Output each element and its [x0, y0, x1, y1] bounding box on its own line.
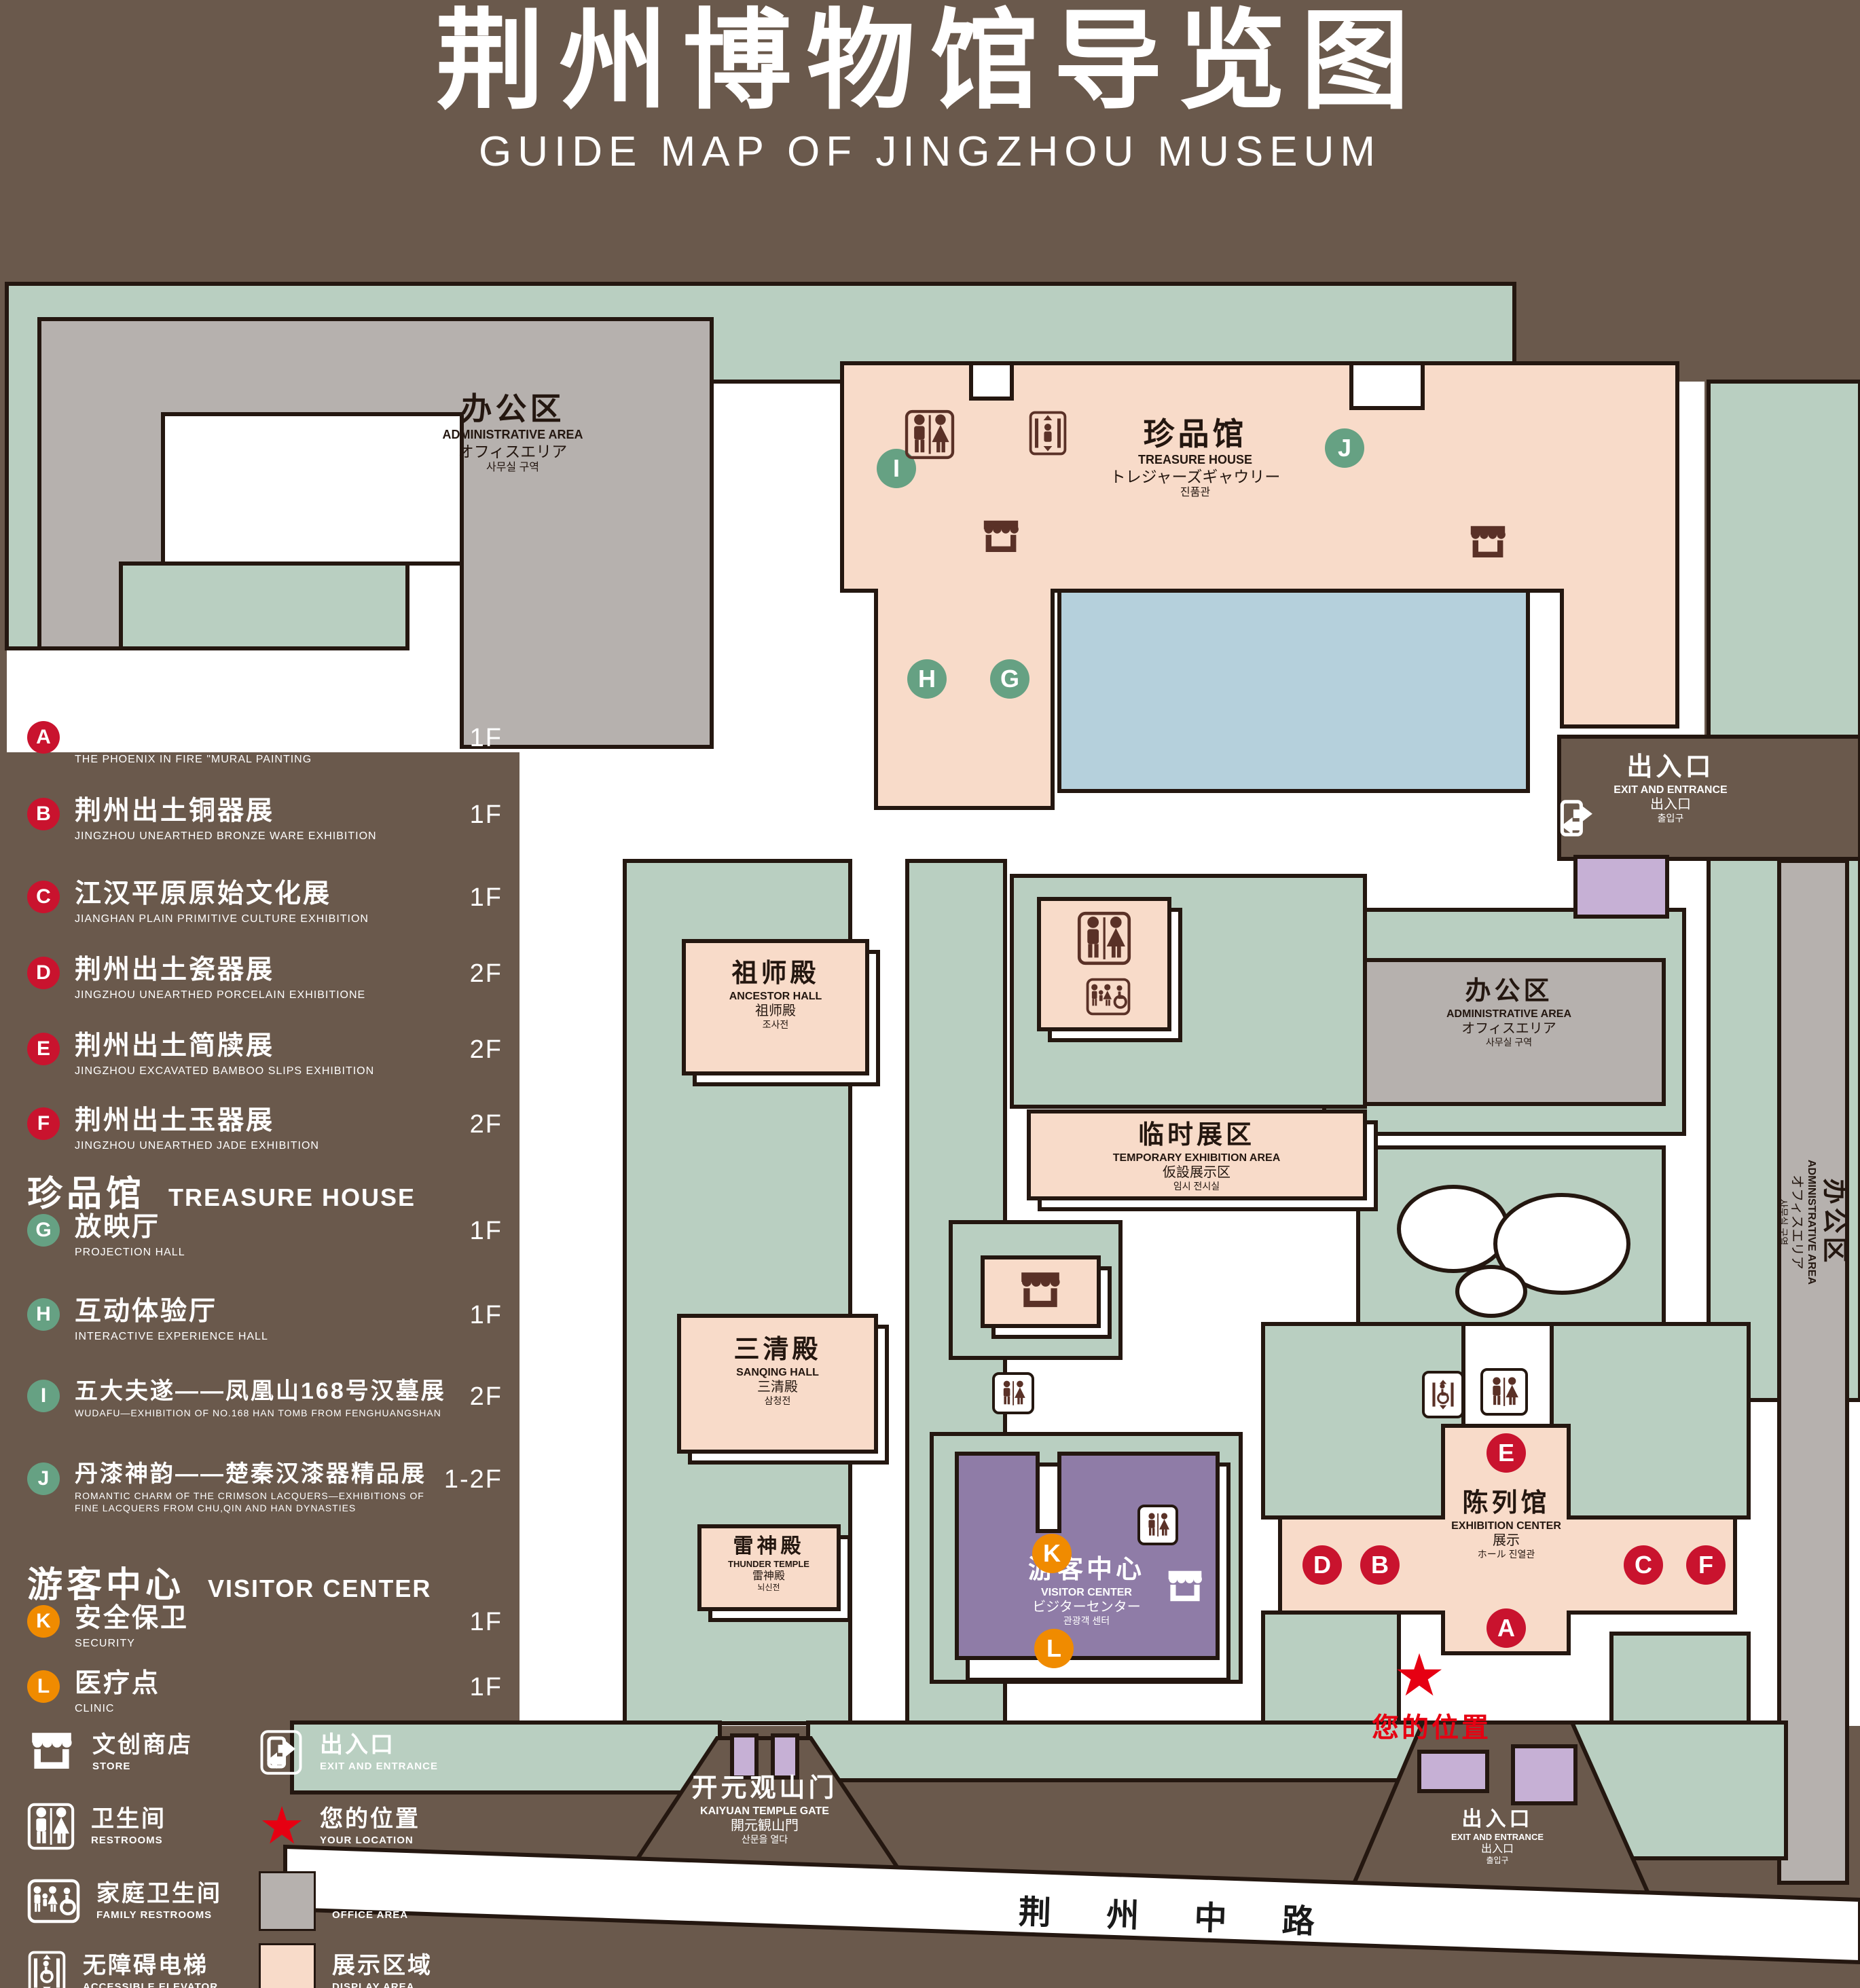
label-thunder-temple: 雷神殿 THUNDER TEMPLE 雷神殿 뇌신전 [728, 1534, 809, 1592]
label-admin-northwest: 办公区 ADMINISTRATIVE AREA オフィスエリア 사무실 구역 [443, 390, 583, 475]
east-booth [1575, 857, 1667, 917]
plaza-pad-ne [1552, 1324, 1749, 1517]
legend-symbol-office-area: 办公区域OFFICE AREA [259, 1871, 483, 1931]
page-title: 荆州博物馆导览图 [0, 4, 1860, 118]
label-admin-east: 办公区 ADMINISTRATIVE AREA オフィスエリア 사무실 구역 [1446, 976, 1571, 1048]
treasure-house-notch [971, 363, 1012, 399]
label-exit-south: 出入口 EXIT AND ENTRANCE 出入口 출입구 [1451, 1807, 1544, 1865]
south-booth-left [1419, 1752, 1487, 1791]
store-icon [980, 519, 1022, 557]
exit-icon [1558, 799, 1596, 837]
exit-icon [259, 1730, 304, 1775]
label-admin-strip: 办公区 ADMINISTRATIVE AREA オフィスエリア 사무실 구역 [1777, 1160, 1849, 1285]
poster-header: 荆州博物馆导览图 GUIDE MAP OF JINGZHOU MUSEUM [0, 0, 1860, 176]
restrooms-icon [1480, 1368, 1528, 1416]
garden-pond [1399, 1187, 1508, 1271]
plaza-pad-nw [1263, 1324, 1463, 1517]
map-badge-k: K [1032, 1534, 1072, 1573]
restrooms-icon [1137, 1505, 1178, 1545]
label-temporary-area: 临时展区 TEMPORARY EXHIBITION AREA 仮設展示区 임시 … [1113, 1120, 1281, 1192]
legend-symbols-row3: 家庭卫生间FAMILY RESTROOMS 办公区域OFFICE AREA [27, 1871, 503, 1931]
guide-map-poster: 荆州博物馆导览图 GUIDE MAP OF JINGZHOU MUSEUM 办公… [0, 0, 1860, 1988]
restrooms-icon [905, 409, 955, 460]
legend-item-c: C 江汉平原原始文化展JIANGHAN PLAIN PRIMITIVE CULT… [27, 879, 503, 926]
legend-section-visitor-center: 游客中心 VISITOR CENTER [27, 1556, 431, 1607]
store-icon [1017, 1270, 1063, 1312]
your-location-icon: ★ [259, 1801, 304, 1852]
accessible-elevator-icon [1422, 1371, 1464, 1418]
legend-item-j: J 丹漆神韵——楚秦汉漆器精品展ROMANTIC CHARM OF THE CR… [27, 1461, 503, 1514]
legend-item-g: G 放映厅PROJECTION HALL 1F [27, 1213, 503, 1259]
legend-item-d: D 荆州出土瓷器展JINGZHOU UNEARTHED PORCELAIN EX… [27, 955, 503, 1002]
legend-symbols-row5: 电梯Elevator [27, 1946, 503, 1988]
restrooms-icon [1077, 911, 1131, 965]
label-gate: 开元观山门 KAIYUAN TEMPLE GATE 開元観山門 산문을 열다 [691, 1773, 837, 1845]
label-sanqing-hall: 三清殿 SANQING HALL 三清殿 삼청전 [733, 1335, 821, 1407]
map-badge-c: C [1624, 1545, 1663, 1585]
map-badge-d: D [1302, 1545, 1342, 1585]
legend-item-b: B 荆州出土铜器展JINGZHOU UNEARTHED BRONZE WARE … [27, 796, 503, 843]
legend-item-l: L 医疗点CLINIC 1F [27, 1669, 503, 1716]
legend-symbols-row2: 卫生间RESTROOMS ★ 您的位置YOUR LOCATION [27, 1801, 503, 1852]
map-badge-l: L [1034, 1629, 1074, 1668]
your-location-star-icon: ★ [1393, 1646, 1445, 1705]
map-badge-g: G [990, 659, 1029, 699]
map-badge-e: E [1487, 1433, 1526, 1473]
legend-item-h: H 互动体验厅INTERACTIVE EXPERIENCE HALL 1F [27, 1297, 503, 1344]
legend-item-k: K 安全保卫SECURITY 1F [27, 1604, 503, 1651]
south-booth-right [1513, 1746, 1575, 1803]
legend-item-a: A 《火中的凤凰》壁画THE PHOENIX IN FIRE "MURAL PA… [27, 720, 503, 767]
label-exhibition-center: 陈列馆 EXHIBITION CENTER 展示 ホール 진열관 [1451, 1488, 1561, 1560]
legend-symbol-your-location: ★ 您的位置YOUR LOCATION [259, 1801, 483, 1852]
legend-symbol-family-restrooms: 家庭卫生间FAMILY RESTROOMS [27, 1871, 234, 1931]
map-badge-f: F [1686, 1545, 1726, 1585]
map-badge-b: B [1360, 1545, 1400, 1585]
garden-pond3 [1457, 1267, 1525, 1316]
store-icon [1165, 1569, 1205, 1606]
legend-item-f: F 荆州出土玉器展JINGZHOU UNEARTHED JADE EXHIBIT… [27, 1106, 503, 1153]
family-restrooms-icon [27, 1879, 80, 1923]
page-subtitle: GUIDE MAP OF JINGZHOU MUSEUM [0, 128, 1860, 176]
legend-symbols-row1: 文创商店STORE 出入口EXIT AND ENTRANCE [27, 1730, 503, 1775]
store-icon [27, 1731, 76, 1774]
label-your-location: 您的位置 [1372, 1706, 1491, 1745]
legend-item-e: E 荆州出土简牍展JINGZHOU EXCAVATED BAMBOO SLIPS… [27, 1031, 503, 1078]
legend-symbol-exit: 出入口EXIT AND ENTRANCE [259, 1730, 483, 1775]
green-south-band-center [808, 1723, 1427, 1780]
restrooms-icon [992, 1372, 1034, 1414]
map-badge-h: H [907, 659, 947, 699]
legend-section-treasure-house: 珍品馆 TREASURE HOUSE [27, 1165, 416, 1216]
office-area-swatch [259, 1871, 316, 1931]
family-restrooms-icon [1086, 978, 1131, 1016]
map-badge-j: J [1325, 428, 1364, 468]
legend-symbol-store: 文创商店STORE [27, 1730, 234, 1775]
store-icon [1467, 524, 1509, 562]
plaza-pad-se [1611, 1634, 1749, 1726]
treasure-house-notch2 [1351, 363, 1423, 408]
restrooms-icon [27, 1803, 75, 1850]
gate-booth-right [773, 1735, 797, 1778]
label-treasure-house: 珍品馆 TREASURE HOUSE トレジャーズギャウリー 진품관 [1110, 416, 1281, 500]
admin-strip-east [1779, 861, 1847, 1883]
map-badge-a: A [1487, 1608, 1526, 1648]
elevator-icon [1029, 411, 1067, 456]
label-exit-east: 出入口 EXIT AND ENTRANCE 出入口 출입구 [1613, 752, 1727, 824]
admin-courtyard [163, 414, 462, 564]
gate-booth-left [732, 1735, 756, 1778]
label-ancestor-hall: 祖师殿 ANCESTOR HALL 祖师殿 조사전 [729, 959, 822, 1031]
legend-item-i: I 五大夫遂——凤凰山168号汉墓展WUDAFU—EXHIBITION OF N… [27, 1378, 503, 1420]
legend-symbol-restrooms: 卫生间RESTROOMS [27, 1801, 234, 1852]
